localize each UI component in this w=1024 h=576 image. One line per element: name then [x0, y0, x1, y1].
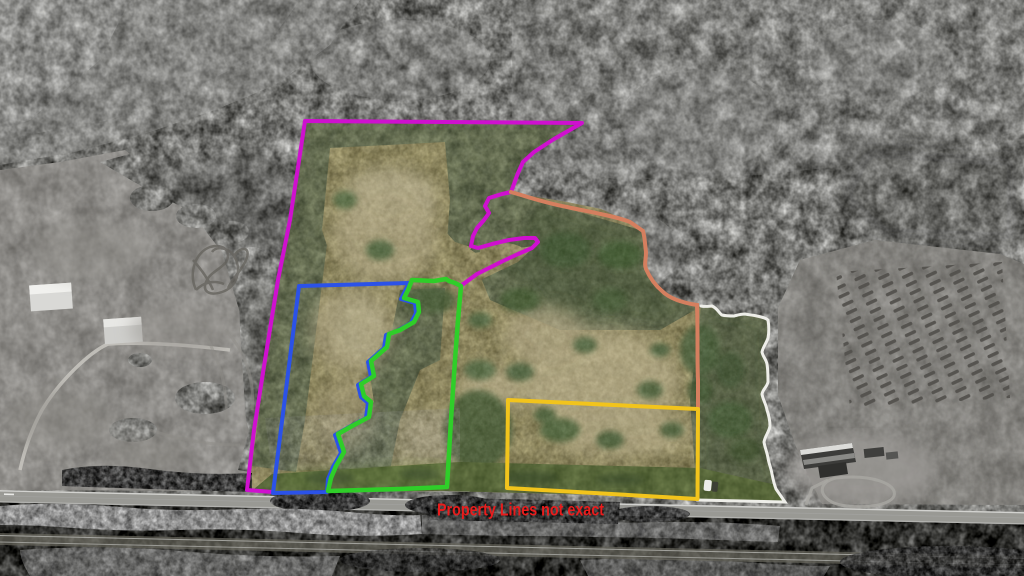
svg-text:Property Lines not exact: Property Lines not exact	[437, 500, 604, 520]
